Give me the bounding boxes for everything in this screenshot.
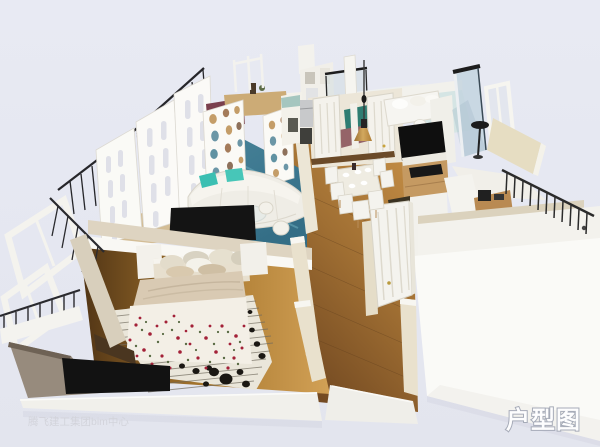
svg-text:户型图: 户型图 [506,406,581,434]
svg-text:腾飞建工集团bim中心: 腾飞建工集团bim中心 [28,415,129,428]
